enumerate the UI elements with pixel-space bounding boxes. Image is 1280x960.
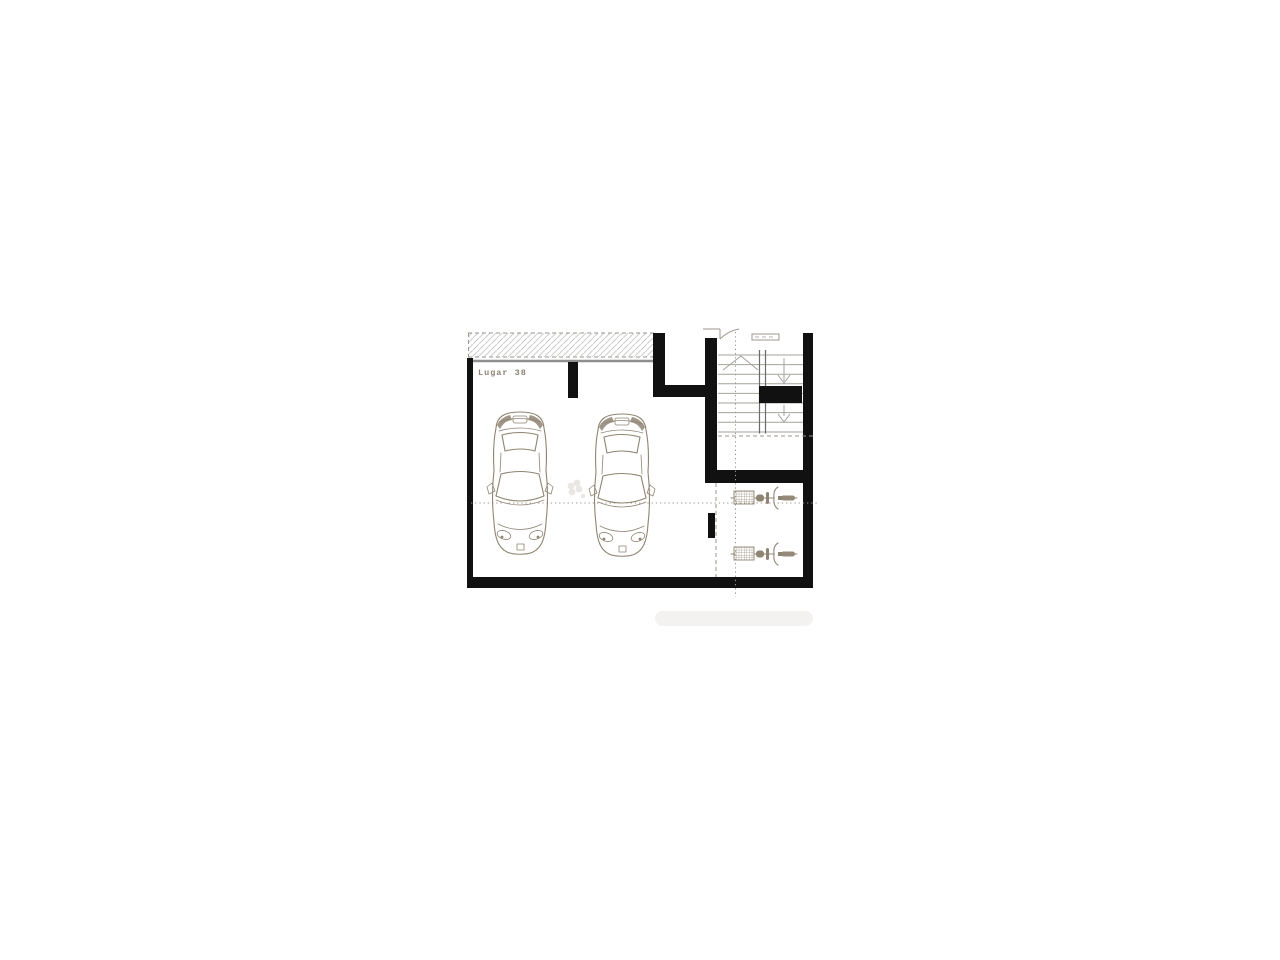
stair-black-landing [766,386,802,403]
wall-stair-bottom [705,470,813,483]
parking-spot-label: Lugar 38 [478,368,527,378]
stair-down-arrow-icon [778,358,790,383]
watermark-shadow [655,611,813,626]
car-icon-1 [487,412,553,554]
wall-bottom [467,577,813,588]
stair-up-arrow-icon [723,356,758,370]
wall-right [803,333,813,588]
wall-stub-bike [708,513,715,538]
bicycle-icon-2 [731,543,797,565]
top-label-box [752,334,779,340]
car-icon-2 [589,414,655,556]
wall-left [467,358,473,588]
bicycle-icon-1 [731,487,797,509]
wall-stair-left [705,338,717,483]
floor-plan: Lugar 38 [467,326,815,598]
wall-stub-top [568,362,578,398]
watermark [568,480,586,499]
stair-landing-fill [759,386,766,403]
door-swing [703,329,739,339]
staircase [718,350,815,436]
stair-down-arrow-icon [778,405,790,422]
hatch-area [468,333,655,361]
